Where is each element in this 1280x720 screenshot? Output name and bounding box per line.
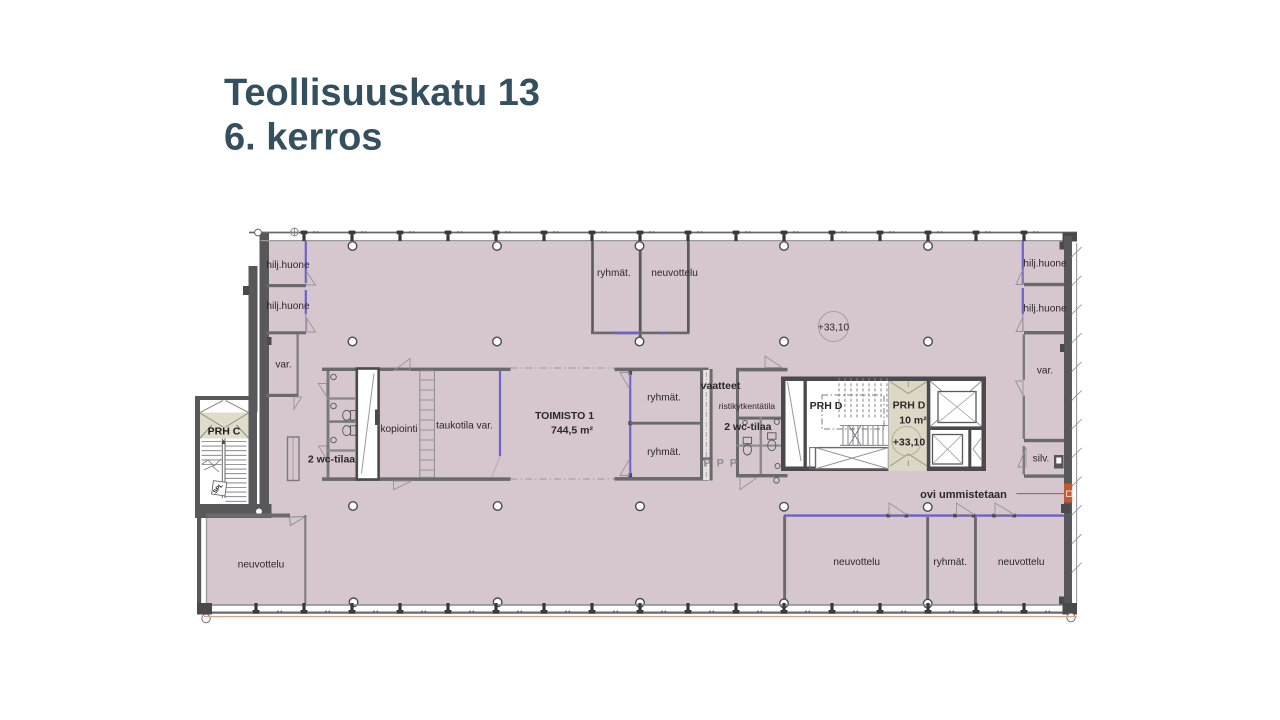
svg-text:taukotila var.: taukotila var.: [436, 421, 493, 432]
svg-text:neuvottelu: neuvottelu: [238, 560, 285, 571]
svg-text:neuvottelu: neuvottelu: [833, 557, 880, 568]
svg-text:2 wc-tilaa: 2 wc-tilaa: [724, 421, 771, 433]
svg-text:6. kerros: 6. kerros: [224, 117, 382, 159]
svg-text:kopiointi: kopiointi: [380, 424, 417, 435]
svg-text:+33,10: +33,10: [818, 323, 850, 334]
svg-text:ristikytkentätila: ristikytkentätila: [719, 401, 776, 411]
svg-text:10 m²: 10 m²: [899, 415, 927, 427]
svg-text:var.: var.: [1037, 366, 1053, 377]
svg-text:PRH D: PRH D: [810, 400, 843, 412]
svg-text:ryhmät.: ryhmät.: [597, 268, 631, 279]
svg-text:ryhmät.: ryhmät.: [933, 557, 967, 568]
svg-text:744,5 m²: 744,5 m²: [551, 425, 594, 437]
svg-text:PRH C: PRH C: [208, 426, 241, 438]
svg-text:neuvottelu: neuvottelu: [651, 268, 698, 279]
svg-text:silv.: silv.: [1033, 454, 1050, 465]
svg-text:TOIMISTO 1: TOIMISTO 1: [535, 410, 594, 422]
svg-text:hilj.huone: hilj.huone: [1023, 304, 1067, 315]
svg-text:hilj.huone: hilj.huone: [266, 301, 310, 312]
svg-text:Teollisuuskatu 13: Teollisuuskatu 13: [224, 72, 540, 114]
svg-text:ryhmät.: ryhmät.: [647, 447, 681, 458]
svg-text:ovi ummistetaan: ovi ummistetaan: [920, 489, 1007, 501]
svg-text:neuvottelu: neuvottelu: [998, 557, 1045, 568]
svg-text:PRH D: PRH D: [893, 400, 926, 412]
svg-text:hilj.huone: hilj.huone: [1023, 259, 1067, 270]
svg-text:+33,10: +33,10: [893, 437, 926, 449]
svg-text:hilj.huone: hilj.huone: [266, 260, 310, 271]
svg-text:2 wc-tilaa: 2 wc-tilaa: [308, 454, 355, 466]
svg-text:P P P: P P P: [703, 458, 738, 470]
svg-text:ryhmät.: ryhmät.: [647, 393, 681, 404]
svg-text:vaatteet: vaatteet: [701, 380, 741, 392]
svg-text:var.: var.: [275, 360, 291, 371]
